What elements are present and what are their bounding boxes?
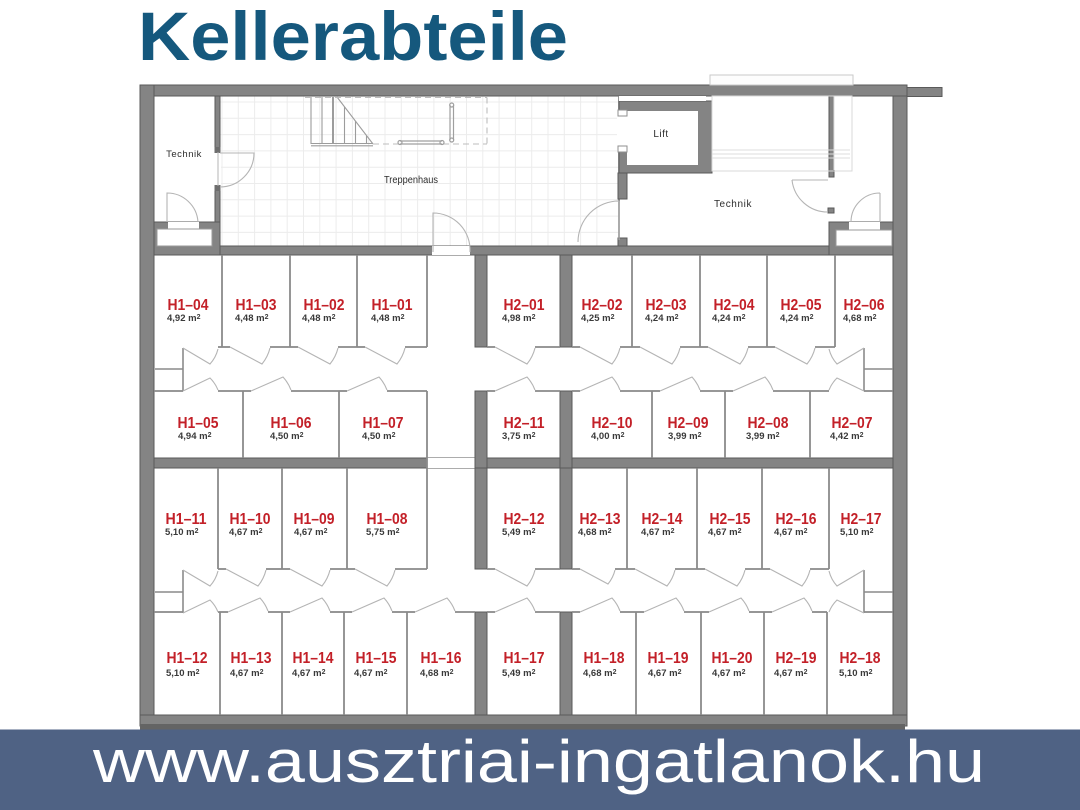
svg-text:4,68 m2: 4,68 m2: [583, 668, 617, 679]
svg-text:H2–02: H2–02: [582, 297, 623, 314]
svg-text:4,67 m2: 4,67 m2: [230, 668, 264, 679]
svg-text:4,50 m2: 4,50 m2: [362, 431, 396, 442]
svg-text:4,48 m2: 4,48 m2: [302, 313, 336, 324]
svg-text:www.ausztriai-ingatlanok.hu: www.ausztriai-ingatlanok.hu: [92, 728, 985, 795]
svg-text:4,98 m2: 4,98 m2: [502, 313, 536, 324]
svg-text:4,67 m2: 4,67 m2: [354, 668, 388, 679]
svg-text:Lift: Lift: [653, 129, 668, 140]
svg-text:H1–17: H1–17: [504, 650, 545, 667]
svg-text:H1–19: H1–19: [648, 650, 689, 667]
svg-text:H2–19: H2–19: [776, 650, 817, 667]
svg-text:H1–03: H1–03: [236, 297, 277, 314]
svg-text:H1–13: H1–13: [231, 650, 272, 667]
svg-text:H2–14: H2–14: [642, 511, 683, 528]
svg-text:3,99 m2: 3,99 m2: [746, 431, 780, 442]
svg-text:H2–07: H2–07: [832, 415, 873, 432]
svg-text:4,48 m2: 4,48 m2: [371, 313, 405, 324]
svg-text:5,10 m2: 5,10 m2: [840, 527, 874, 538]
svg-text:Kellerabteile: Kellerabteile: [138, 0, 568, 75]
svg-text:H1–08: H1–08: [367, 511, 408, 528]
svg-text:H1–15: H1–15: [356, 650, 397, 667]
svg-text:H1–07: H1–07: [363, 415, 404, 432]
svg-text:4,67 m2: 4,67 m2: [294, 527, 328, 538]
svg-text:4,92 m2: 4,92 m2: [167, 313, 201, 324]
svg-text:H1–01: H1–01: [372, 297, 413, 314]
svg-text:5,10 m2: 5,10 m2: [165, 527, 199, 538]
svg-text:4,94 m2: 4,94 m2: [178, 431, 212, 442]
svg-text:4,67 m2: 4,67 m2: [712, 668, 746, 679]
svg-text:4,68 m2: 4,68 m2: [578, 527, 612, 538]
svg-text:H1–20: H1–20: [712, 650, 753, 667]
svg-text:3,99 m2: 3,99 m2: [668, 431, 702, 442]
svg-text:H2–06: H2–06: [844, 297, 885, 314]
svg-text:H1–06: H1–06: [271, 415, 312, 432]
svg-text:3,75 m2: 3,75 m2: [502, 431, 536, 442]
svg-text:4,67 m2: 4,67 m2: [708, 527, 742, 538]
svg-text:Technik: Technik: [714, 199, 753, 210]
svg-text:H2–15: H2–15: [710, 511, 751, 528]
svg-text:5,49 m2: 5,49 m2: [502, 527, 536, 538]
svg-text:H2–17: H2–17: [841, 511, 882, 528]
svg-text:H1–12: H1–12: [167, 650, 208, 667]
svg-text:4,24 m2: 4,24 m2: [645, 313, 679, 324]
svg-text:H2–01: H2–01: [504, 297, 545, 314]
svg-text:H1–18: H1–18: [584, 650, 625, 667]
svg-text:4,67 m2: 4,67 m2: [641, 527, 675, 538]
svg-text:4,67 m2: 4,67 m2: [774, 527, 808, 538]
svg-text:4,48 m2: 4,48 m2: [235, 313, 269, 324]
svg-text:5,49 m2: 5,49 m2: [502, 668, 536, 679]
svg-text:H2–11: H2–11: [504, 415, 545, 432]
svg-text:H2–03: H2–03: [646, 297, 687, 314]
svg-text:4,00 m2: 4,00 m2: [591, 431, 625, 442]
svg-text:H2–12: H2–12: [504, 511, 545, 528]
svg-text:H1–05: H1–05: [178, 415, 219, 432]
svg-text:4,68 m2: 4,68 m2: [843, 313, 877, 324]
svg-text:H2–08: H2–08: [748, 415, 789, 432]
svg-text:H2–18: H2–18: [840, 650, 881, 667]
svg-text:4,67 m2: 4,67 m2: [774, 668, 808, 679]
svg-text:H2–13: H2–13: [580, 511, 621, 528]
svg-text:H1–09: H1–09: [294, 511, 335, 528]
svg-text:H1–11: H1–11: [166, 511, 207, 528]
svg-text:H1–10: H1–10: [230, 511, 271, 528]
svg-text:4,24 m2: 4,24 m2: [780, 313, 814, 324]
svg-text:H1–16: H1–16: [421, 650, 462, 667]
svg-text:H2–05: H2–05: [781, 297, 822, 314]
svg-text:5,75 m2: 5,75 m2: [366, 527, 400, 538]
svg-text:Treppenhaus: Treppenhaus: [384, 175, 438, 186]
svg-text:H1–02: H1–02: [304, 297, 345, 314]
svg-text:4,68 m2: 4,68 m2: [420, 668, 454, 679]
svg-text:H1–14: H1–14: [293, 650, 334, 667]
svg-text:H1–04: H1–04: [168, 297, 209, 314]
svg-text:5,10 m2: 5,10 m2: [166, 668, 200, 679]
svg-text:4,24 m2: 4,24 m2: [712, 313, 746, 324]
svg-text:4,25 m2: 4,25 m2: [581, 313, 615, 324]
svg-text:H2–09: H2–09: [668, 415, 709, 432]
svg-text:H2–10: H2–10: [592, 415, 633, 432]
svg-text:H2–16: H2–16: [776, 511, 817, 528]
svg-text:H2–04: H2–04: [714, 297, 755, 314]
svg-text:4,67 m2: 4,67 m2: [648, 668, 682, 679]
svg-text:5,10 m2: 5,10 m2: [839, 668, 873, 679]
svg-text:4,67 m2: 4,67 m2: [229, 527, 263, 538]
svg-text:4,50 m2: 4,50 m2: [270, 431, 304, 442]
svg-text:4,42 m2: 4,42 m2: [830, 431, 864, 442]
svg-text:4,67 m2: 4,67 m2: [292, 668, 326, 679]
svg-text:Technik: Technik: [166, 149, 202, 160]
